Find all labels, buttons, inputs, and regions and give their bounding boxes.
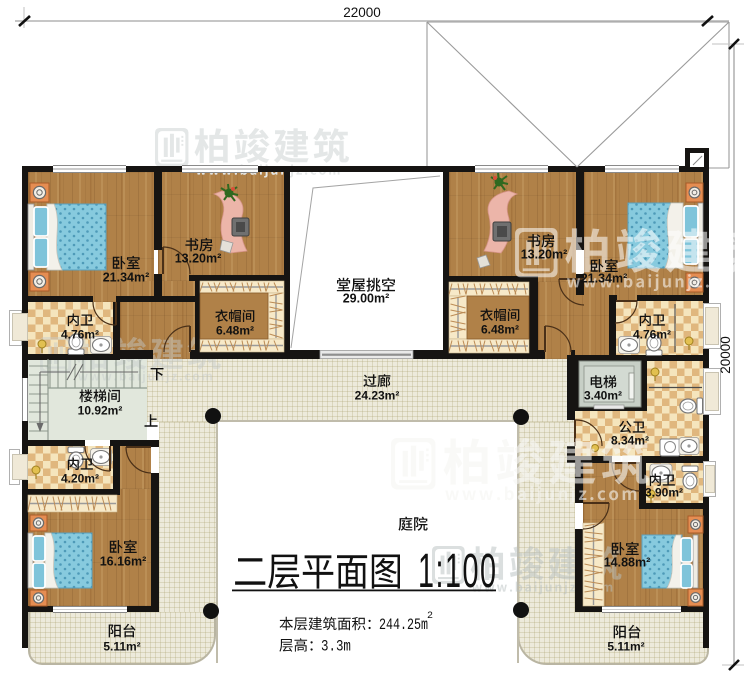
- svg-text:16.16m²: 16.16m²: [100, 555, 147, 569]
- svg-text:13.20m²: 13.20m²: [175, 252, 222, 266]
- svg-text:14.88m²: 14.88m²: [604, 556, 651, 570]
- svg-text:5.11m²: 5.11m²: [607, 639, 644, 653]
- svg-text:4.76m²: 4.76m²: [633, 327, 671, 341]
- svg-text:8.34m²: 8.34m²: [611, 433, 649, 447]
- svg-text:21.34m²: 21.34m²: [103, 271, 150, 285]
- svg-text:20000: 20000: [718, 336, 733, 374]
- svg-text:10.92m²: 10.92m²: [78, 403, 123, 417]
- svg-text:6.48m²: 6.48m²: [216, 323, 254, 337]
- svg-text:3.3m: 3.3m: [321, 638, 351, 656]
- svg-text:2: 2: [427, 611, 433, 622]
- svg-text:22000: 22000: [343, 5, 381, 20]
- svg-text:21.34m²: 21.34m²: [581, 272, 628, 286]
- svg-text:5.11m²: 5.11m²: [103, 639, 140, 653]
- svg-text:3.90m²: 3.90m²: [645, 485, 683, 499]
- svg-text:4.76m²: 4.76m²: [61, 327, 99, 341]
- svg-text:24.23m²: 24.23m²: [355, 388, 400, 402]
- svg-text:13.20m²: 13.20m²: [521, 248, 568, 262]
- svg-text:29.00m²: 29.00m²: [343, 292, 390, 306]
- svg-text:3.40m²: 3.40m²: [584, 388, 622, 402]
- svg-text:4.20m²: 4.20m²: [61, 471, 99, 485]
- svg-text:244.25m: 244.25m: [379, 616, 428, 634]
- svg-text:6.48m²: 6.48m²: [481, 322, 519, 336]
